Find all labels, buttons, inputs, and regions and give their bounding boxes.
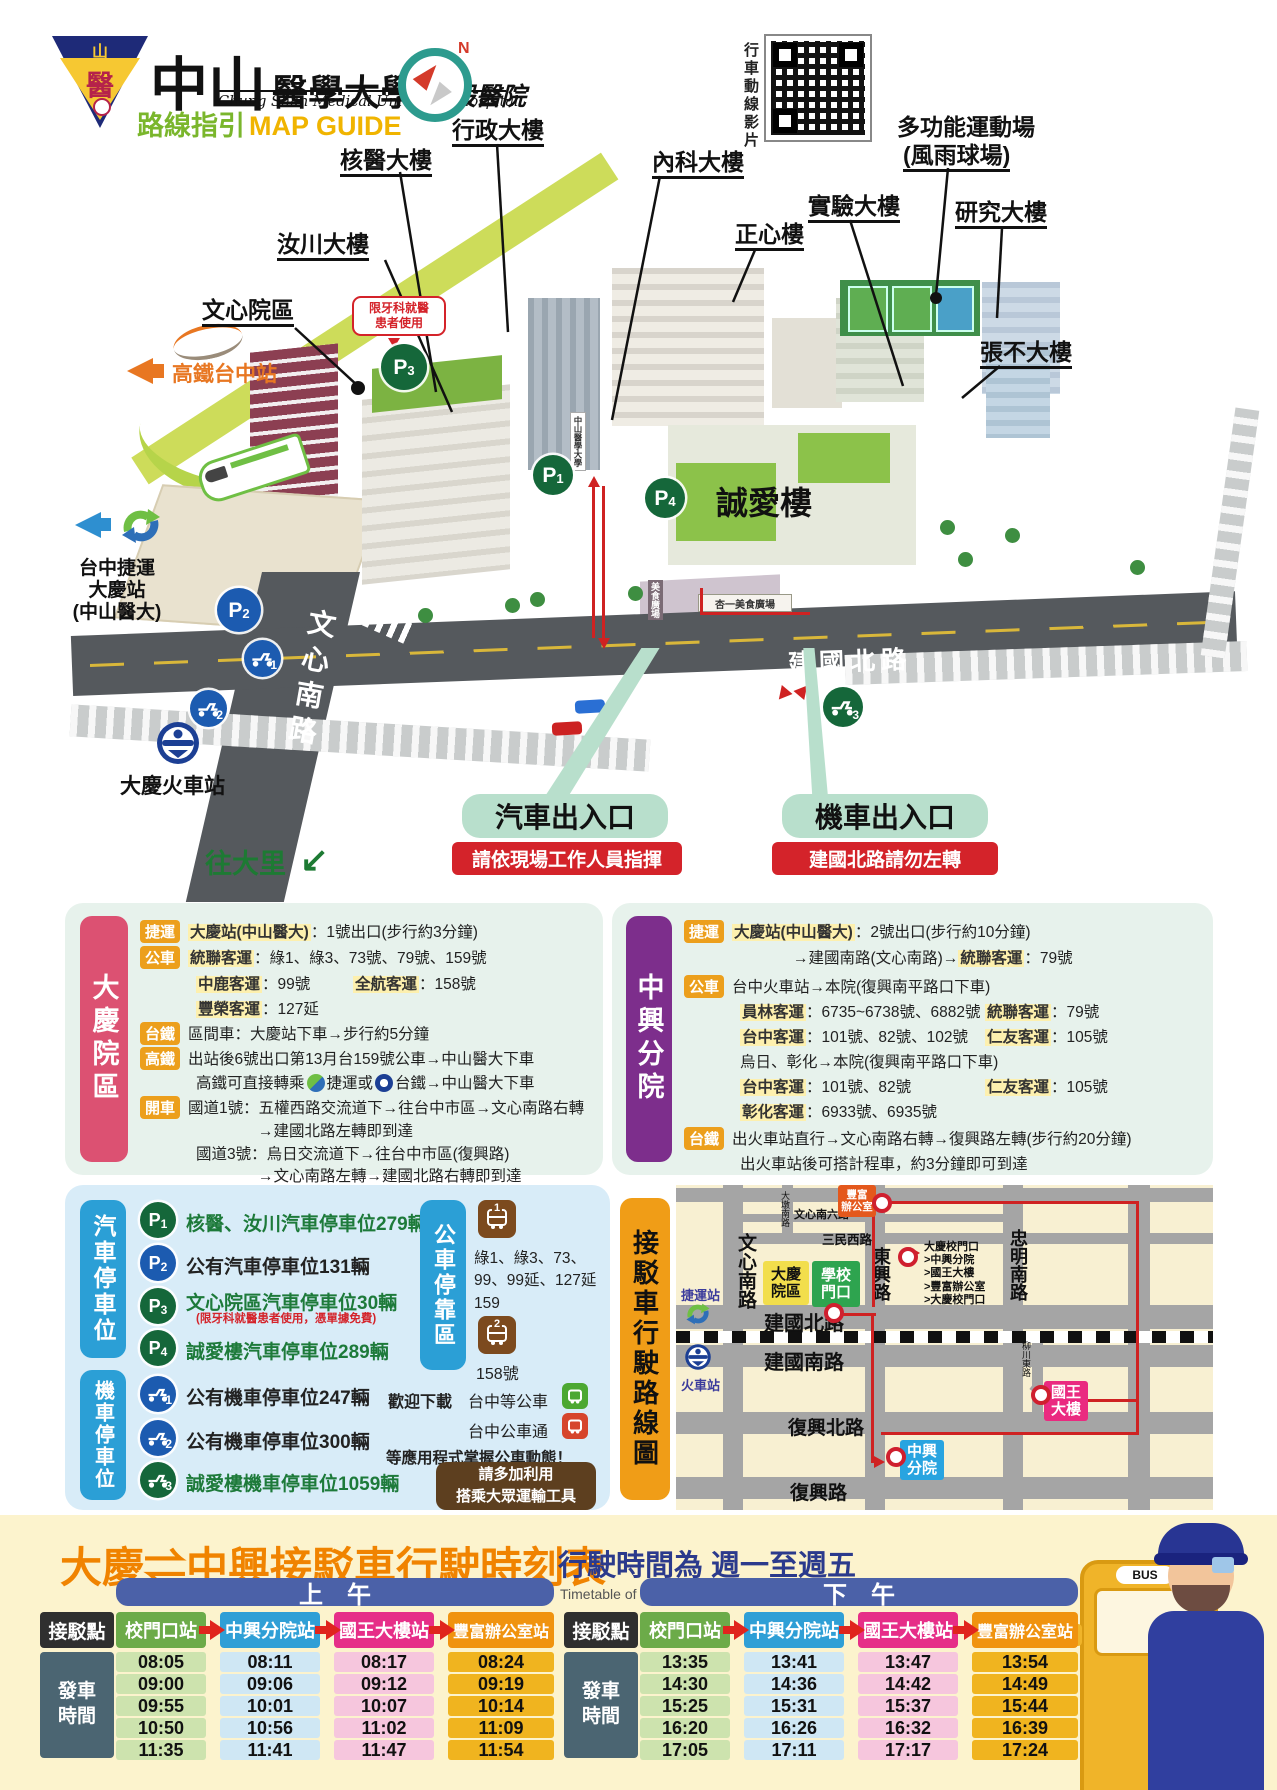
zhongxing-panel-side-label: 中興分院 — [626, 916, 672, 1162]
car-route-arrow-down — [598, 638, 610, 649]
transit-cta-box: 請多加利用 搭乘大眾運輸工具 — [436, 1462, 596, 1510]
zx-bus5b-rest: ：105號 — [1051, 1079, 1108, 1096]
parking-car3-note: (限牙科就醫患者使用，憑單據免費) — [196, 1313, 376, 1325]
rm-dot-school — [824, 1303, 844, 1323]
daqing-drive1: 國道1號：五權西路交流道下→往台中市區→文心南路右轉 — [188, 1100, 584, 1117]
pm-time: 17:05 — [640, 1740, 730, 1760]
compass-n-label: N — [458, 40, 470, 58]
daqing-bus3-hl: 豐榮客運 — [196, 1001, 262, 1018]
zx-tra1: 出火車站直行→文心南路右轉→復興路左轉(步行約20分鐘) — [732, 1131, 1132, 1148]
daqing-drive2b: →文心南路左轉→建國北路右轉即到達 — [258, 1168, 522, 1185]
am-time: 10:14 — [448, 1696, 554, 1716]
zx-bus3b-rest: ：105號 — [1051, 1029, 1108, 1046]
rm-label-fuxing-n: 復興北路 — [788, 1413, 864, 1440]
mrt-logo-icon — [118, 505, 164, 547]
am-row-label: 發車 時間 — [40, 1652, 114, 1758]
daqing-panel-side-label: 大慶院區 — [80, 916, 128, 1162]
tra-logo-icon — [155, 720, 201, 766]
am-time: 11:02 — [334, 1718, 434, 1738]
legend-p4-letter: P — [149, 1339, 161, 1357]
pm-time: 13:47 — [858, 1652, 958, 1672]
zx-bus6-hl: 彰化客運 — [740, 1104, 806, 1121]
pm-station-4: 豐富辦公室站 — [972, 1612, 1078, 1648]
apps-download-label: 歡迎下載 — [388, 1394, 452, 1411]
rm-road-jianguo-s — [676, 1345, 1213, 1367]
zx-bus2a-rest: ：6735~6738號、6882號 — [806, 1004, 981, 1021]
rm-route-arrow — [874, 1456, 885, 1468]
bus-zone-side-label: 公車停靠區 — [420, 1200, 466, 1370]
am-time: 11:41 — [220, 1740, 320, 1760]
tag-bus: 公車 — [684, 975, 724, 998]
rm-stop-king: 國王 大樓 — [1044, 1381, 1088, 1421]
tra-mini-icon — [375, 1074, 393, 1092]
hsr-station-label: 高鐵台中站 — [172, 358, 277, 388]
am-time: 10:01 — [220, 1696, 320, 1716]
parking-moto1-text: 公有機車停車位247輛 — [186, 1388, 370, 1409]
zx-mrt2-hl: 統聯客運 — [958, 950, 1024, 967]
daqing-bus2b-hl: 全航客運 — [353, 976, 419, 993]
daqing-mrt-hl: 大慶站(中山醫大) — [188, 924, 311, 941]
mrt-mini-icon — [307, 1074, 325, 1092]
parking-car4-text: 誠愛樓汽車停車位289輛 — [186, 1342, 389, 1363]
car-gate-callout: 汽車出入口 — [462, 794, 668, 838]
parking-car1-text: 核醫、汝川汽車停車位279輛 — [186, 1214, 427, 1235]
rm-label-zhongming-s: 忠明南路 — [1005, 1229, 1031, 1301]
am-station-3: 國王大樓站 — [334, 1612, 434, 1648]
rm-railway-crossing — [676, 1331, 1213, 1343]
to-dali-label: 往大里 — [205, 842, 286, 881]
am-arrow-2 — [314, 1620, 342, 1640]
legend-moto-2-number: 2 — [165, 1437, 172, 1451]
am-time: 09:55 — [116, 1696, 206, 1716]
rm-label-sanmin-w: 三民西路 — [822, 1229, 872, 1248]
am-time: 11:54 — [448, 1740, 554, 1760]
hsr-arrow-tail — [150, 364, 164, 378]
mrt-station-label: 台中捷運 大慶站 (中山醫大) — [52, 558, 182, 624]
am-time: 08:24 — [448, 1652, 554, 1672]
legend-p4-badge: P4 — [140, 1330, 176, 1366]
moto-gate-note: 建國北路請勿左轉 — [772, 842, 998, 875]
p1-number: 1 — [556, 472, 563, 485]
label-internal-building: 內科大樓 — [652, 150, 744, 179]
zx-bus3a-hl: 台中客運 — [740, 1029, 806, 1046]
dental-note-bubble: 限牙科就醫 患者使用 — [352, 296, 446, 336]
label-zhengxin-building: 正心樓 — [735, 222, 804, 251]
moto-3-number: 3 — [852, 708, 859, 722]
to-dali-arrow-icon: ↙ — [300, 840, 329, 880]
car-gate-note: 請依現場工作人員指揮 — [452, 842, 682, 875]
pm-time: 14:49 — [972, 1674, 1078, 1694]
am-time: 08:11 — [220, 1652, 320, 1672]
label-nuclear-building: 核醫大樓 — [340, 148, 432, 177]
rm-stop-school: 學校 門口 — [812, 1261, 860, 1307]
daqing-bus2a-rest: ：99號 — [262, 976, 310, 993]
pm-time: 16:32 — [858, 1718, 958, 1738]
legend-moto-3-badge: 3 — [140, 1462, 176, 1498]
am-time: 09:19 — [448, 1674, 554, 1694]
p4-number: 4 — [668, 495, 675, 508]
zx-bus6-rest: ：6933號、6935號 — [806, 1104, 937, 1121]
pm-time: 13:41 — [744, 1652, 844, 1672]
moto-gate-callout: 機車出入口 — [782, 794, 988, 838]
pm-station-2: 中興分院站 — [744, 1612, 844, 1648]
bus-driver-illustration: BUS — [1060, 1515, 1277, 1790]
legend-p2-badge: P2 — [140, 1245, 176, 1281]
am-time: 10:07 — [334, 1696, 434, 1716]
period-pm-bar: 下 午 — [640, 1578, 1078, 1606]
parking-moto3-text: 誠愛樓機車停車位1059輛 — [186, 1474, 399, 1495]
rm-label-fuxing: 復興路 — [790, 1478, 847, 1505]
daqing-bus1-rest: ：綠1、綠3、73號、79號、159號 — [254, 950, 487, 967]
pm-time: 13:54 — [972, 1652, 1078, 1672]
pm-time: 14:30 — [640, 1674, 730, 1694]
rm-route-seg — [881, 1432, 1139, 1435]
bus-stop-1-icon: 1 — [478, 1200, 516, 1238]
rm-train-station-label: 火車站 — [681, 1375, 720, 1394]
tag-tra: 台鐵 — [684, 1127, 724, 1150]
daqing-bus3-rest: ：127延 — [262, 1001, 319, 1018]
am-time: 09:00 — [116, 1674, 206, 1694]
app1-icon — [562, 1383, 588, 1409]
legend-p3-number: 3 — [161, 1304, 168, 1316]
rm-stop-daqing: 大慶 院區 — [763, 1261, 809, 1305]
daqing-hsr-line2a: 高鐵可直接轉乘 — [196, 1075, 305, 1092]
mrt-arrow-tail — [98, 518, 111, 531]
zx-bus1: 台中火車站→本院(復興南平路口下車) — [732, 979, 990, 996]
app2-name: 台中公車通 — [468, 1424, 548, 1441]
daqing-bus1-hl: 統聯客運 — [188, 950, 254, 967]
zx-bus5b-hl: 仁友客運 — [985, 1079, 1051, 1096]
label-chengai-building: 誠愛樓 — [716, 478, 812, 524]
p3-number: 3 — [407, 364, 414, 377]
legend-moto-2-badge: 2 — [140, 1420, 176, 1456]
label-admin-building: 行政大樓 — [452, 118, 544, 147]
pm-time: 15:37 — [858, 1696, 958, 1716]
p2-letter: P — [228, 600, 242, 621]
zx-mrt-hl: 大慶站(中山醫大) — [732, 924, 855, 941]
p3-letter: P — [393, 357, 407, 378]
bus-stop-1-number: 1 — [492, 1203, 502, 1214]
am-station-1: 校門口站 — [116, 1612, 206, 1648]
car-route-arrow-up — [588, 476, 600, 487]
rm-label-liuchuan-e: 柳川東路 — [1020, 1341, 1033, 1377]
label-research-building: 研究大樓 — [955, 200, 1047, 229]
am-time: 10:56 — [220, 1718, 320, 1738]
pm-time: 15:31 — [744, 1696, 844, 1716]
daqing-hsr-line2b: 捷運或 — [327, 1075, 374, 1092]
rm-label-wenxin-s: 文心南路 — [732, 1233, 759, 1309]
legend-p3-letter: P — [149, 1297, 161, 1315]
pm-time: 16:26 — [744, 1718, 844, 1738]
am-station-2: 中興分院站 — [220, 1612, 320, 1648]
tag-hsr: 高鐵 — [140, 1047, 180, 1070]
parking-p1-badge: P1 — [533, 455, 573, 495]
rm-label-jianguo-s: 建國南路 — [764, 1346, 844, 1375]
pm-row-label: 發車 時間 — [564, 1652, 638, 1758]
pm-station-3: 國王大樓站 — [858, 1612, 958, 1648]
bus-stop-2-routes: 158號 — [476, 1366, 519, 1383]
tag-mrt: 捷運 — [684, 920, 724, 943]
pm-time: 15:25 — [640, 1696, 730, 1716]
map-guide-poster: 山中 醫 中山 醫學大學 附設醫院 Chung Shan Medical Uni… — [0, 0, 1277, 1790]
legend-p2-number: 2 — [161, 1261, 168, 1273]
moto-parking-side-label: 機車停車位 — [80, 1370, 126, 1500]
car-parking-side-label: 汽車停車位 — [80, 1200, 126, 1358]
zx-bus3b-hl: 仁友客運 — [985, 1029, 1051, 1046]
rm-road-fuxing — [676, 1477, 1213, 1499]
daqing-mrt-rest: ：1號出口(步行約3分鐘) — [311, 924, 478, 941]
rm-dot-fengfu — [872, 1193, 892, 1213]
label-zhangbu-building: 張不大樓 — [980, 340, 1072, 369]
zx-bus4: 烏日、彰化→本院(復興南平路口下車) — [740, 1054, 998, 1071]
label-sports-field-2: (風雨球場) — [903, 143, 1010, 172]
am-arrow-1 — [198, 1620, 226, 1640]
rm-dot-zhongxing — [886, 1447, 906, 1467]
am-time: 10:50 — [116, 1718, 206, 1738]
bus-stop-2-icon: 2 — [478, 1316, 516, 1354]
rm-legend-dot — [898, 1247, 918, 1267]
am-time: 11:47 — [334, 1740, 434, 1760]
zx-bus3a-rest: ：101號、82號、102號 — [806, 1029, 968, 1046]
zx-bus5a-hl: 台中客運 — [740, 1079, 806, 1096]
zx-tra2: 出火車站後可搭計程車，約3分鐘即可到達 — [740, 1156, 1028, 1173]
moto-1-number: 1 — [270, 658, 277, 672]
moto-area-2-badge: 2 — [190, 690, 227, 727]
tra-station-label: 大慶火車站 — [120, 770, 225, 800]
rm-stop-zhongxing: 中興 分院 — [900, 1440, 944, 1480]
pm-time: 16:39 — [972, 1718, 1078, 1738]
parking-moto2-text: 公有機車停車位300輛 — [186, 1432, 370, 1453]
p1-letter: P — [542, 465, 556, 486]
moto-area-3-badge: 3 — [823, 687, 863, 727]
bus-stop-1-routes: 綠1、綠3、73、 99、99延、127延 159 — [474, 1250, 596, 1312]
period-am-bar: 上 午 — [116, 1578, 554, 1606]
pm-time: 17:24 — [972, 1740, 1078, 1760]
am-arrow-3 — [428, 1620, 456, 1640]
moto-area-1-badge: 1 — [244, 640, 281, 677]
pm-station-1: 校門口站 — [640, 1612, 730, 1648]
app2-icon — [562, 1413, 588, 1439]
pm-time: 17:11 — [744, 1740, 844, 1760]
p4-letter: P — [654, 488, 668, 509]
am-time: 11:09 — [448, 1718, 554, 1738]
am-time: 11:35 — [116, 1740, 206, 1760]
pm-time: 14:36 — [744, 1674, 844, 1694]
label-ruchuan-building: 汝川大樓 — [277, 232, 369, 261]
legend-p4-number: 4 — [161, 1346, 168, 1358]
zx-bus2b-rest: ：79號 — [1051, 1004, 1099, 1021]
pm-time: 13:35 — [640, 1652, 730, 1672]
zx-mrt2b: ：79號 — [1024, 950, 1072, 967]
legend-moto-1-number: 1 — [165, 1393, 172, 1407]
zx-mrt-rest: ：2號出口(步行約10分鐘) — [855, 924, 1031, 941]
zx-mrt2a: →建國南路(文心南路)→ — [793, 950, 958, 967]
moto-2-number: 2 — [216, 708, 223, 722]
pm-time: 14:42 — [858, 1674, 958, 1694]
legend-p1-letter: P — [149, 1211, 161, 1229]
legend-p3-badge: P3 — [140, 1288, 176, 1324]
pm-arrow-1 — [722, 1620, 750, 1640]
tag-drive: 開車 — [140, 1096, 180, 1119]
legend-p1-badge: P1 — [140, 1202, 176, 1238]
daqing-bus2a-hl: 中鹿客運 — [196, 976, 262, 993]
rm-route-legend: 大慶校門口 >中興分院 >國王大樓 >豐富辦公室 >大慶校門口 — [924, 1241, 985, 1307]
rm-road-fuxing-n — [676, 1412, 1213, 1434]
parking-p3-badge: P3 — [381, 344, 427, 390]
rm-mrt-logo-icon — [684, 1301, 712, 1327]
label-wenxin-campus: 文心院區 — [202, 298, 294, 327]
daqing-hsr-line1: 出站後6號出口第13月台159號公車→中山醫大下車 — [188, 1051, 534, 1068]
pm-time: 17:17 — [858, 1740, 958, 1760]
daqing-drive1b: →建國北路左轉即到達 — [258, 1123, 413, 1140]
tag-bus: 公車 — [140, 946, 180, 969]
tag-mrt: 捷運 — [140, 920, 180, 943]
legend-moto-3-number: 3 — [165, 1479, 172, 1493]
parking-p4-badge: P4 — [645, 478, 685, 518]
daqing-drive2: 國道3號：烏日交流道下→往台中市區(復興路) — [196, 1146, 509, 1163]
am-time: 08:05 — [116, 1652, 206, 1672]
label-lab-building: 實驗大樓 — [808, 194, 900, 223]
p2-number: 2 — [242, 607, 249, 620]
rm-stop-fengfu: 豐富 辦公室 — [838, 1185, 876, 1217]
zx-bus2b-hl: 統聯客運 — [985, 1004, 1051, 1021]
parking-p2-badge: P2 — [217, 588, 261, 632]
pm-time: 15:44 — [972, 1696, 1078, 1716]
pm-arrow-3 — [952, 1620, 980, 1640]
legend-p1-number: 1 — [161, 1218, 168, 1230]
daqing-tra-line: 區間車：大慶站下車→步行約5分鐘 — [188, 1026, 429, 1043]
am-corner-cell: 接駁點 — [40, 1612, 114, 1648]
bus-sign: BUS — [1116, 1566, 1174, 1584]
rm-route-seg — [1080, 1399, 1138, 1402]
am-station-4: 豐富辦公室站 — [448, 1612, 554, 1648]
rm-tra-logo-icon — [684, 1343, 712, 1371]
label-sports-field-1: 多功能運動場 — [897, 115, 1035, 141]
legend-moto-1-badge: 1 — [140, 1376, 176, 1412]
campus-map: 杏一美食廣場 美食廣場 中山醫學大學 — [0, 100, 1277, 900]
route-map-side-label: 接駁車行駛路線圖 — [620, 1198, 670, 1500]
zx-bus5a-rest: ：101號、82號 — [806, 1079, 911, 1096]
legend-p2-letter: P — [149, 1254, 161, 1272]
shuttle-route-map: 文心南路 大墩南路 文心南六路 三民西路 東興路 忠明南路 建國北路 建國南路 … — [676, 1185, 1213, 1510]
parking-car2-text: 公有汽車停車位131輛 — [186, 1257, 370, 1278]
bus-stop-2-number: 2 — [492, 1319, 502, 1330]
rm-label-dadun-s: 大墩南路 — [779, 1191, 792, 1227]
rm-route-seg — [871, 1315, 874, 1463]
tag-tra: 台鐵 — [140, 1022, 180, 1045]
rm-dot-king — [1031, 1385, 1051, 1405]
app1-name: 台中等公車 — [468, 1394, 548, 1411]
rm-route-seg — [875, 1201, 1139, 1204]
pm-corner-cell: 接駁點 — [564, 1612, 638, 1648]
pm-time: 16:20 — [640, 1718, 730, 1738]
am-time: 08:17 — [334, 1652, 434, 1672]
daqing-bus2b-rest: ：158號 — [419, 976, 476, 993]
zx-bus2a-hl: 員林客運 — [740, 1004, 806, 1021]
pm-arrow-2 — [838, 1620, 866, 1640]
daqing-hsr-line2c: 台鐵→中山醫大下車 — [395, 1075, 535, 1092]
am-time: 09:12 — [334, 1674, 434, 1694]
am-time: 09:06 — [220, 1674, 320, 1694]
